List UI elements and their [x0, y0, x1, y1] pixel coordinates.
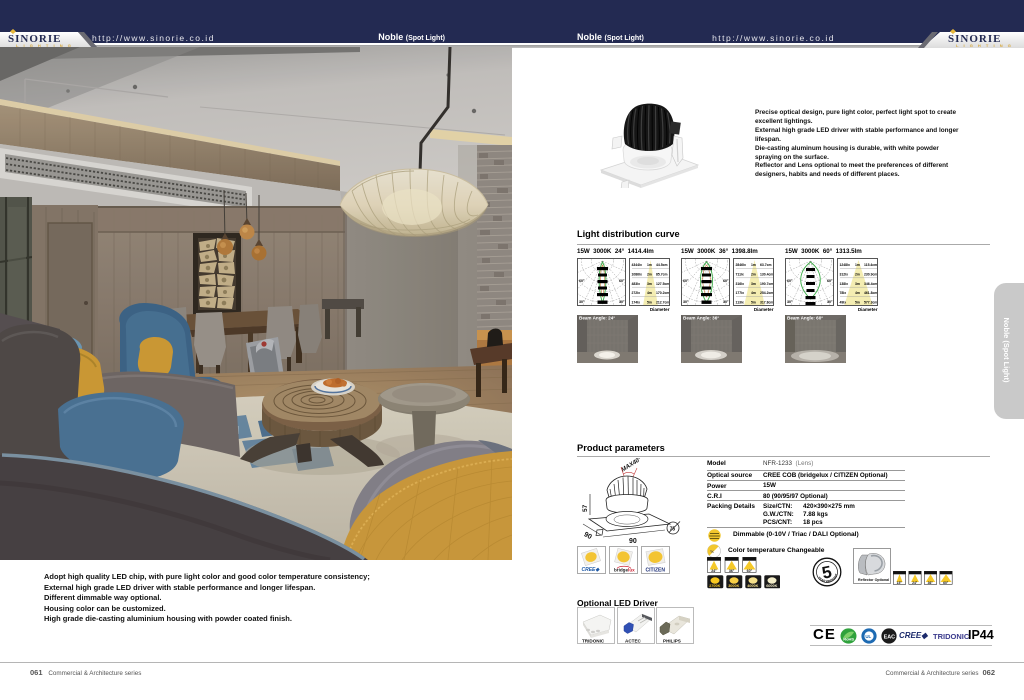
svg-text:230.9cm: 230.9cm — [864, 272, 877, 276]
svg-text:85.7cm: 85.7cm — [656, 272, 668, 276]
svg-text:4000K: 4000K — [747, 584, 758, 588]
svg-text:3m: 3m — [647, 282, 652, 286]
svg-text:63.7cm: 63.7cm — [760, 263, 772, 267]
svg-text:577.3cm: 577.3cm — [864, 301, 877, 305]
svg-text:711lx: 711lx — [735, 272, 743, 276]
svg-text:44.5cm: 44.5cm — [656, 263, 668, 267]
svg-text:57: 57 — [582, 504, 589, 512]
svg-text:190.7cm: 190.7cm — [760, 282, 773, 286]
svg-text:RoHS: RoHS — [843, 636, 854, 641]
svg-text:90: 90 — [629, 538, 637, 545]
svg-text:4m: 4m — [647, 291, 652, 295]
svg-text:6000K: 6000K — [766, 584, 777, 588]
svg-text:212.7cm: 212.7cm — [656, 301, 669, 305]
svg-text:60°: 60° — [683, 279, 689, 283]
svg-text:60°: 60° — [579, 279, 585, 283]
svg-text:3m: 3m — [855, 282, 860, 286]
svg-text:30°: 30° — [683, 300, 689, 304]
svg-text:461.8cm: 461.8cm — [864, 291, 877, 295]
svg-text:60°: 60° — [827, 279, 833, 283]
svg-text:317.8cm: 317.8cm — [760, 301, 773, 305]
svg-text:30°: 30° — [827, 300, 833, 304]
svg-text:312lx: 312lx — [839, 272, 848, 276]
svg-text:60°: 60° — [747, 569, 753, 573]
svg-text:2700K: 2700K — [709, 584, 720, 588]
svg-text:170.2cm: 170.2cm — [656, 291, 669, 295]
svg-text:36°: 36° — [928, 581, 934, 585]
svg-text:174lx: 174lx — [631, 301, 640, 305]
svg-text:60°: 60° — [723, 279, 729, 283]
svg-text:24°: 24° — [711, 569, 717, 573]
svg-text:113lx: 113lx — [735, 301, 743, 305]
svg-text:4m: 4m — [855, 291, 860, 295]
svg-text:483lx: 483lx — [631, 282, 640, 286]
svg-text:3m: 3m — [751, 282, 756, 286]
svg-text:30°: 30° — [619, 300, 625, 304]
svg-text:Beam Angle: 60°: Beam Angle: 60° — [787, 316, 823, 321]
svg-text:30°: 30° — [579, 300, 585, 304]
svg-text:115.4cm: 115.4cm — [864, 263, 877, 267]
svg-text:1m: 1m — [751, 263, 756, 267]
svg-text:1086lx: 1086lx — [631, 272, 641, 276]
svg-text:4m: 4m — [751, 291, 756, 295]
svg-text:2846lx: 2846lx — [735, 263, 745, 267]
svg-text:127.5cm: 127.5cm — [656, 282, 669, 286]
svg-text:PHILIPS: PHILIPS — [663, 639, 681, 644]
svg-text:°K: °K — [710, 550, 714, 554]
svg-text:346.4cm: 346.4cm — [864, 282, 877, 286]
svg-text:177lx: 177lx — [735, 291, 744, 295]
svg-text:EAC: EAC — [884, 634, 895, 640]
svg-text:60°: 60° — [943, 581, 949, 585]
svg-text:130.4cm: 130.4cm — [760, 272, 773, 276]
svg-text:24°: 24° — [912, 581, 918, 585]
svg-text:15°: 15° — [897, 581, 903, 585]
svg-text:60°: 60° — [787, 279, 793, 283]
svg-text:CREE◆: CREE◆ — [582, 567, 601, 573]
svg-text:3000K: 3000K — [728, 584, 739, 588]
svg-text:CITIZEN: CITIZEN — [646, 568, 666, 574]
svg-text:Beam Angle: 36°: Beam Angle: 36° — [683, 316, 719, 321]
svg-text:MAX40°: MAX40° — [621, 458, 644, 474]
svg-text:4344lx: 4344lx — [631, 263, 641, 267]
svg-text:Beam Angle: 24°: Beam Angle: 24° — [579, 316, 615, 321]
svg-text:Reflector Optional: Reflector Optional — [858, 578, 889, 582]
svg-text:2m: 2m — [647, 272, 652, 276]
svg-text:UL: UL — [865, 634, 871, 639]
svg-text:TRIDONIC: TRIDONIC — [582, 639, 605, 644]
svg-text:138lx: 138lx — [839, 282, 848, 286]
svg-text:2m: 2m — [855, 272, 860, 276]
svg-text:60°: 60° — [619, 279, 625, 283]
svg-text:bridgelux: bridgelux — [614, 568, 635, 573]
svg-text:1248lx: 1248lx — [839, 263, 849, 267]
svg-text:ACTEC: ACTEC — [625, 639, 642, 644]
svg-text:316lx: 316lx — [735, 282, 744, 286]
svg-text:36°: 36° — [729, 569, 735, 573]
svg-text:30°: 30° — [723, 300, 729, 304]
svg-text:1m: 1m — [647, 263, 652, 267]
svg-text:90: 90 — [583, 531, 593, 541]
svg-text:5m: 5m — [855, 301, 860, 305]
svg-text:2m: 2m — [751, 272, 756, 276]
svg-text:5m: 5m — [751, 301, 756, 305]
svg-text:78lx: 78lx — [839, 291, 846, 295]
svg-text:49lx: 49lx — [839, 301, 846, 305]
svg-text:272lx: 272lx — [631, 291, 640, 295]
svg-text:1m: 1m — [855, 263, 860, 267]
svg-text:30°: 30° — [787, 300, 793, 304]
svg-text:75: 75 — [670, 527, 676, 533]
svg-text:5m: 5m — [647, 301, 652, 305]
svg-text:254.2cm: 254.2cm — [760, 291, 773, 295]
